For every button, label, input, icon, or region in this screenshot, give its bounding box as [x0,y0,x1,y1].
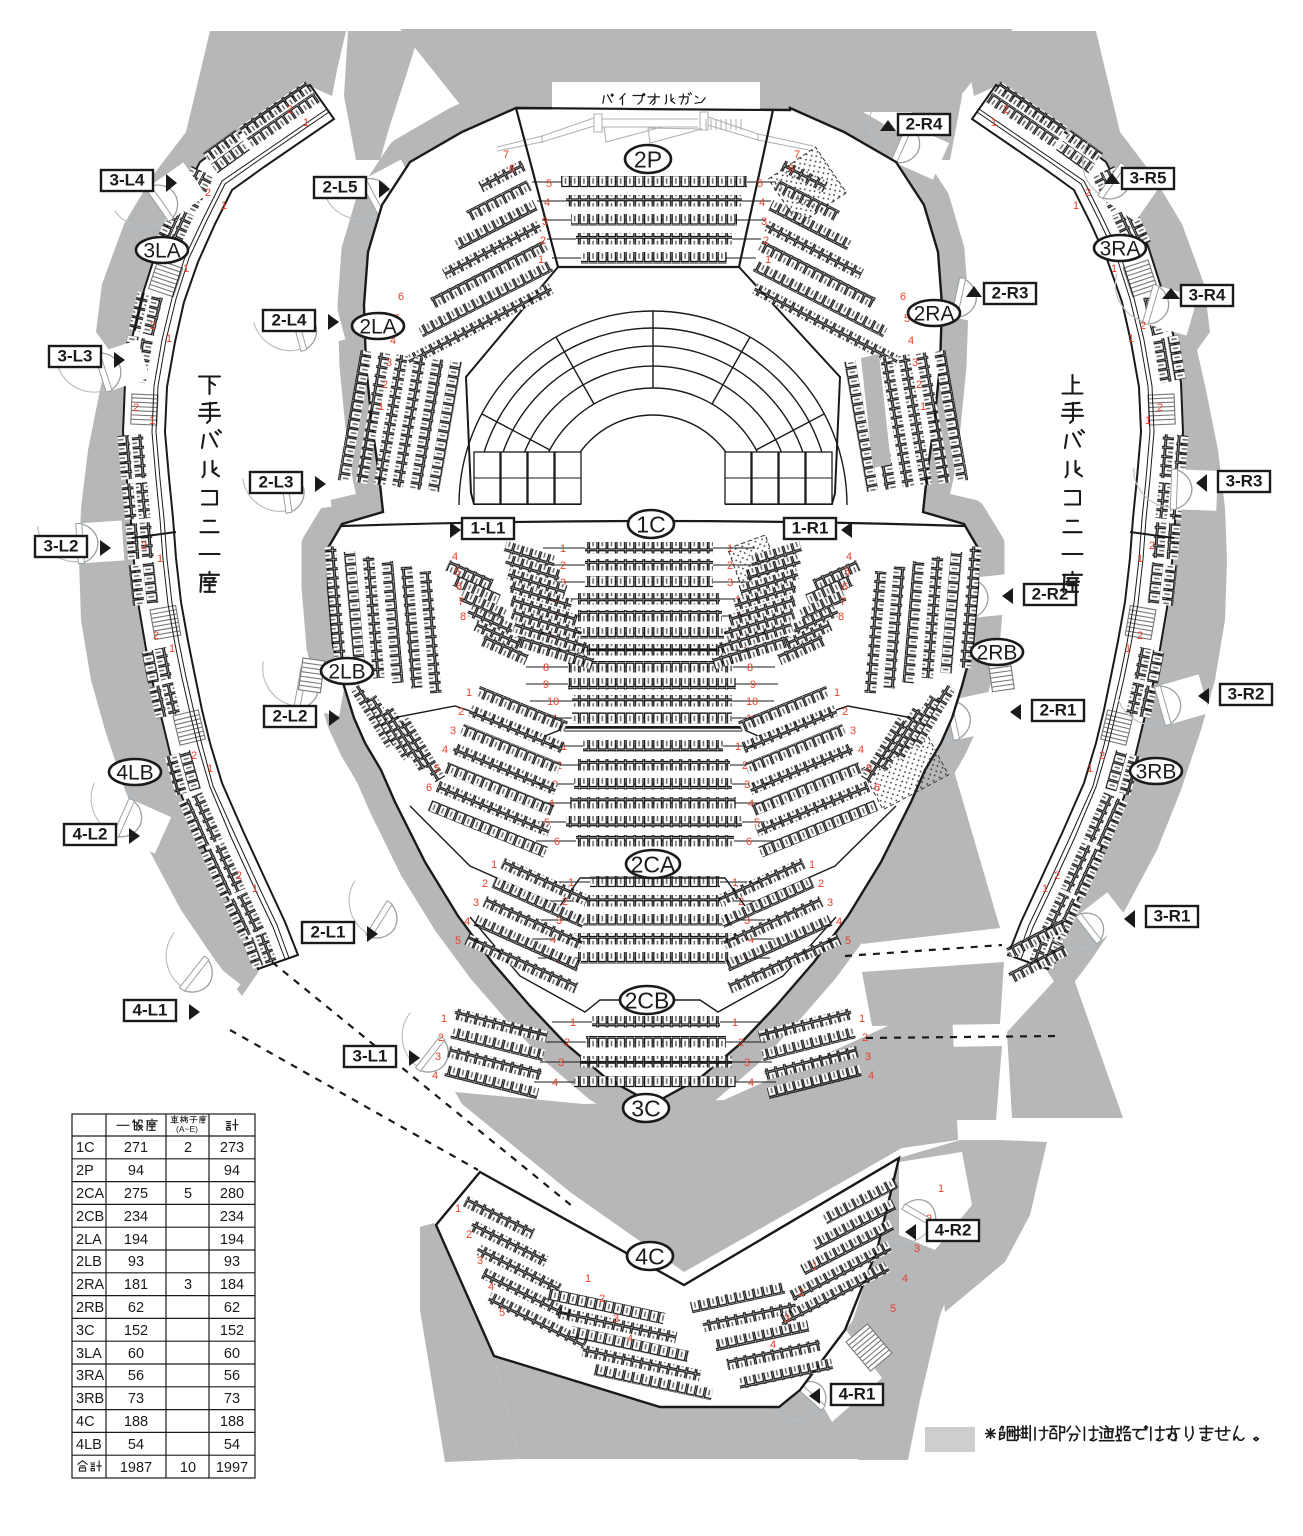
svg-text:3LA: 3LA [143,240,180,263]
svg-text:5: 5 [845,935,851,947]
svg-text:2: 2 [141,540,147,552]
svg-text:4: 4 [846,551,852,563]
svg-text:1: 1 [149,415,155,427]
svg-text:2: 2 [818,878,824,890]
svg-text:1: 1 [1073,200,1079,212]
svg-text:4: 4 [488,1281,494,1293]
svg-text:2: 2 [287,104,293,116]
svg-text:3: 3 [744,1057,750,1069]
svg-text:2: 2 [916,379,922,391]
svg-text:3-L3: 3-L3 [58,347,93,366]
svg-text:1997: 1997 [216,1460,248,1476]
svg-text:1-L1: 1-L1 [471,519,506,538]
svg-text:3: 3 [761,216,767,228]
svg-text:10: 10 [547,696,559,708]
svg-text:3: 3 [450,725,456,737]
svg-text:54: 54 [128,1437,144,1453]
svg-text:2: 2 [466,1229,472,1241]
svg-text:9: 9 [750,679,756,691]
svg-text:2: 2 [1085,187,1091,199]
svg-text:93: 93 [224,1254,240,1270]
svg-text:4: 4 [836,916,842,928]
svg-text:6: 6 [554,836,560,848]
svg-text:1: 1 [991,117,997,129]
svg-text:3-R2: 3-R2 [1228,685,1265,704]
svg-text:4-L1: 4-L1 [133,1001,168,1020]
svg-text:2-L3: 2-L3 [259,473,294,492]
svg-text:2: 2 [153,630,159,642]
svg-text:8: 8 [838,611,844,623]
svg-text:273: 273 [220,1140,244,1156]
svg-text:3: 3 [613,1313,619,1325]
svg-text:2: 2 [599,1293,605,1305]
svg-text:54: 54 [224,1437,240,1453]
svg-text:1: 1 [455,1203,461,1215]
svg-text:2: 2 [1137,630,1143,642]
svg-text:2: 2 [438,1032,444,1044]
svg-text:4: 4 [759,197,765,209]
svg-text:2: 2 [150,320,156,332]
svg-text:5: 5 [866,763,872,775]
svg-text:1C: 1C [76,1140,95,1156]
svg-text:4-L2: 4-L2 [73,825,108,844]
svg-text:2: 2 [798,1287,804,1299]
svg-text:4: 4 [770,1339,776,1351]
svg-text:2CA: 2CA [76,1186,105,1202]
svg-text:1: 1 [157,553,163,565]
svg-text:2LA: 2LA [359,316,396,339]
svg-text:271: 271 [124,1140,148,1156]
svg-text:3-R1: 3-R1 [1154,907,1191,926]
svg-text:2: 2 [382,379,388,391]
svg-text:280: 280 [220,1186,244,1202]
svg-text:56: 56 [128,1368,144,1384]
svg-text:1: 1 [252,883,258,895]
svg-text:5: 5 [499,1307,505,1319]
svg-text:2RB: 2RB [977,642,1018,665]
svg-text:3: 3 [850,725,856,737]
svg-text:5: 5 [546,178,552,190]
svg-text:2-L1: 2-L1 [311,923,346,942]
svg-text:56: 56 [224,1368,240,1384]
svg-text:2: 2 [1099,750,1105,762]
svg-text:1: 1 [809,859,815,871]
svg-text:1: 1 [1145,415,1151,427]
svg-text:73: 73 [224,1391,240,1407]
svg-text:3: 3 [912,357,918,369]
svg-text:3-L4: 3-L4 [110,171,146,190]
svg-text:6: 6 [456,581,462,593]
svg-text:4-R1: 4-R1 [839,1385,876,1404]
svg-text:2RA: 2RA [76,1277,105,1293]
svg-text:1: 1 [1042,883,1048,895]
svg-text:1: 1 [491,859,497,871]
svg-text:2: 2 [738,1037,744,1049]
svg-text:2-R1: 2-R1 [1040,701,1077,720]
svg-text:8: 8 [460,611,466,623]
svg-text:2: 2 [191,750,197,762]
svg-text:4: 4 [908,335,914,347]
svg-text:3RA: 3RA [76,1368,105,1384]
svg-text:93: 93 [128,1254,144,1270]
svg-text:3RB: 3RB [76,1391,104,1407]
svg-text:60: 60 [224,1346,240,1362]
svg-text:5: 5 [455,935,461,947]
svg-text:62: 62 [224,1300,240,1316]
svg-text:94: 94 [224,1163,240,1179]
svg-text:8: 8 [543,662,549,674]
svg-text:2: 2 [205,187,211,199]
svg-text:3RA: 3RA [1100,238,1141,261]
svg-text:2P: 2P [76,1163,94,1179]
svg-text:3: 3 [542,216,548,228]
svg-text:7: 7 [458,596,464,608]
svg-text:7: 7 [503,149,509,161]
svg-text:3: 3 [727,577,733,589]
svg-text:2: 2 [1003,104,1009,116]
svg-text:1: 1 [1128,333,1134,345]
svg-text:2: 2 [1140,320,1146,332]
svg-text:194: 194 [220,1232,244,1248]
svg-text:7: 7 [840,596,846,608]
svg-text:1: 1 [585,1273,591,1285]
svg-text:1: 1 [735,741,741,753]
svg-text:4: 4 [442,744,448,756]
svg-text:2LB: 2LB [328,661,365,684]
svg-text:2-R4: 2-R4 [906,115,943,134]
svg-text:5: 5 [454,566,460,578]
svg-text:234: 234 [220,1209,244,1225]
svg-text:2: 2 [540,235,546,247]
svg-text:5: 5 [890,1303,896,1315]
svg-text:3: 3 [386,357,392,369]
svg-text:2-R3: 2-R3 [992,284,1029,303]
svg-text:3-L1: 3-L1 [353,1047,388,1066]
svg-text:4: 4 [627,1333,633,1345]
svg-text:1: 1 [538,254,544,266]
svg-text:2CA: 2CA [631,851,676,877]
svg-text:1: 1 [570,1017,576,1029]
svg-text:1: 1 [765,254,771,266]
svg-text:7: 7 [794,149,800,161]
svg-text:2: 2 [482,878,488,890]
svg-text:10: 10 [746,696,758,708]
svg-text:62: 62 [128,1300,144,1316]
svg-text:3RB: 3RB [1136,761,1177,784]
svg-text:3C: 3C [76,1323,95,1339]
svg-text:1: 1 [938,1183,944,1195]
svg-text:2: 2 [1149,540,1155,552]
svg-text:1: 1 [221,200,227,212]
svg-text:6: 6 [842,581,848,593]
svg-text:1-R1: 1-R1 [792,519,829,538]
svg-text:60: 60 [128,1346,144,1362]
svg-text:2: 2 [184,1140,192,1156]
svg-text:9: 9 [543,679,549,691]
svg-text:5: 5 [434,763,440,775]
svg-text:4: 4 [552,1077,558,1089]
svg-text:1: 1 [466,687,472,699]
svg-text:73: 73 [128,1391,144,1407]
svg-text:5: 5 [844,566,850,578]
svg-text:1: 1 [183,263,189,275]
svg-text:152: 152 [124,1323,148,1339]
svg-text:3: 3 [784,1313,790,1325]
svg-text:234: 234 [124,1209,148,1225]
svg-text:1: 1 [169,643,175,655]
svg-text:3: 3 [477,1255,483,1267]
svg-text:2: 2 [842,706,848,718]
svg-text:3: 3 [473,897,479,909]
svg-text:3C: 3C [631,1095,660,1121]
svg-text:4LB: 4LB [116,762,153,785]
svg-text:1: 1 [378,401,384,413]
svg-text:188: 188 [124,1414,148,1430]
svg-text:1: 1 [834,687,840,699]
svg-text:2: 2 [1054,870,1060,882]
svg-text:3: 3 [435,1051,441,1063]
svg-text:2P: 2P [634,146,662,172]
svg-text:1: 1 [859,1013,865,1025]
svg-text:3: 3 [558,1057,564,1069]
svg-text:1: 1 [441,1013,447,1025]
svg-text:1C: 1C [636,511,665,537]
svg-text:194: 194 [124,1232,148,1248]
svg-text:4: 4 [544,197,550,209]
svg-text:1: 1 [1137,553,1143,565]
svg-text:1: 1 [1087,763,1093,775]
svg-text:2: 2 [133,402,139,414]
svg-text:2-L4: 2-L4 [272,311,308,330]
svg-text:2-L5: 2-L5 [323,178,358,197]
svg-text:6: 6 [788,163,794,175]
svg-text:152: 152 [220,1323,244,1339]
svg-text:3-R4: 3-R4 [1189,286,1226,305]
svg-text:2CB: 2CB [76,1209,104,1225]
svg-text:4: 4 [868,1070,874,1082]
svg-text:2RA: 2RA [914,303,955,326]
svg-text:2-L2: 2-L2 [273,707,308,726]
svg-text:188: 188 [220,1414,244,1430]
svg-text:1: 1 [207,763,213,775]
svg-text:94: 94 [128,1163,144,1179]
svg-text:1: 1 [732,1017,738,1029]
svg-text:6: 6 [398,291,404,303]
svg-text:6: 6 [509,163,515,175]
svg-text:1: 1 [560,543,566,555]
svg-text:4: 4 [464,916,470,928]
svg-text:3: 3 [865,1051,871,1063]
svg-text:3: 3 [914,1243,920,1255]
svg-text:1987: 1987 [120,1460,152,1476]
svg-text:275: 275 [124,1186,148,1202]
svg-text:3: 3 [184,1277,192,1293]
svg-text:2LB: 2LB [76,1254,102,1270]
svg-text:1: 1 [920,401,926,413]
svg-text:2: 2 [236,870,242,882]
svg-text:1: 1 [1111,263,1117,275]
svg-text:4C: 4C [76,1414,95,1430]
svg-text:2: 2 [564,1037,570,1049]
svg-text:5: 5 [184,1186,192,1202]
svg-text:1: 1 [303,117,309,129]
svg-text:3LA: 3LA [76,1346,102,1362]
svg-text:4-R2: 4-R2 [935,1221,972,1240]
svg-text:4: 4 [432,1070,438,1082]
svg-text:3-R5: 3-R5 [1130,169,1167,188]
svg-text:4: 4 [858,744,864,756]
svg-text:(A~E): (A~E) [176,1124,198,1134]
svg-text:3-L2: 3-L2 [44,537,79,556]
svg-text:184: 184 [220,1277,244,1293]
svg-text:6: 6 [874,782,880,794]
svg-text:2: 2 [1157,402,1163,414]
svg-text:3: 3 [827,897,833,909]
svg-text:1: 1 [166,333,172,345]
svg-text:10: 10 [180,1460,196,1476]
svg-text:8: 8 [747,662,753,674]
svg-text:181: 181 [124,1277,148,1293]
svg-text:3-R3: 3-R3 [1226,472,1263,491]
svg-text:2: 2 [763,235,769,247]
svg-text:4: 4 [452,551,458,563]
svg-text:6: 6 [426,782,432,794]
svg-text:1: 1 [812,1261,818,1273]
svg-text:2CB: 2CB [625,987,670,1013]
svg-text:4C: 4C [635,1243,664,1269]
svg-text:6: 6 [746,836,752,848]
svg-text:4LB: 4LB [76,1437,102,1453]
svg-text:4: 4 [902,1273,908,1285]
svg-text:6: 6 [900,291,906,303]
svg-text:2: 2 [458,706,464,718]
svg-text:5: 5 [757,178,763,190]
svg-text:1: 1 [1125,643,1131,655]
svg-text:2RB: 2RB [76,1300,104,1316]
svg-text:4: 4 [748,1077,754,1089]
svg-text:2LA: 2LA [76,1232,102,1248]
